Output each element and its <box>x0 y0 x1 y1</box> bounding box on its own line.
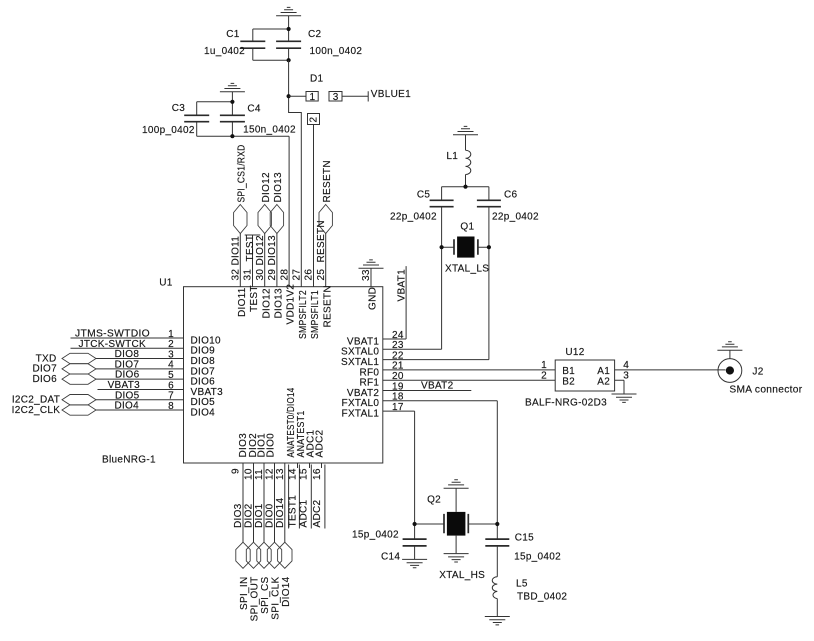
svg-text:15p_0402: 15p_0402 <box>352 530 399 541</box>
svg-text:ADC1: ADC1 <box>299 499 310 527</box>
svg-text:100p_0402: 100p_0402 <box>142 125 195 136</box>
svg-text:C1: C1 <box>226 29 240 40</box>
svg-text:C2: C2 <box>308 29 322 40</box>
svg-text:RESETN: RESETN <box>322 285 333 327</box>
svg-text:VBLUE1: VBLUE1 <box>371 89 411 100</box>
svg-text:BlueNRG-1: BlueNRG-1 <box>102 454 156 465</box>
svg-text:DIO6: DIO6 <box>32 374 57 385</box>
svg-text:C6: C6 <box>504 190 518 201</box>
svg-text:1: 1 <box>541 360 547 371</box>
svg-text:D1: D1 <box>310 74 324 85</box>
svg-text:DIO6: DIO6 <box>191 377 216 388</box>
svg-text:B1: B1 <box>562 366 575 377</box>
svg-text:22p_0402: 22p_0402 <box>492 212 539 223</box>
svg-text:ADC2: ADC2 <box>312 499 323 527</box>
svg-text:TBD_0402: TBD_0402 <box>517 592 567 603</box>
svg-text:DIO13: DIO13 <box>273 172 284 203</box>
svg-text:22p_0402: 22p_0402 <box>390 212 437 223</box>
svg-text:C14: C14 <box>381 552 400 563</box>
svg-text:B2: B2 <box>562 377 575 388</box>
svg-text:32: 32 <box>231 269 242 281</box>
svg-text:DIO14: DIO14 <box>275 497 286 528</box>
svg-text:15p_0402: 15p_0402 <box>514 552 561 563</box>
svg-text:SPI_OUT: SPI_OUT <box>250 577 261 622</box>
svg-text:SMPSFILT1: SMPSFILT1 <box>310 290 321 339</box>
svg-text:25: 25 <box>316 269 327 281</box>
svg-text:L1: L1 <box>446 151 458 162</box>
svg-text:DIO0: DIO0 <box>265 433 276 458</box>
svg-text:13: 13 <box>275 468 286 480</box>
svg-text:Q1: Q1 <box>460 222 474 233</box>
svg-text:SPI_CLK: SPI_CLK <box>271 576 282 619</box>
svg-text:30: 30 <box>255 269 266 281</box>
svg-text:L5: L5 <box>516 579 528 590</box>
svg-text:2: 2 <box>541 370 547 381</box>
svg-text:J2: J2 <box>752 367 763 378</box>
svg-text:DIO12: DIO12 <box>261 288 272 319</box>
svg-text:XTAL_HS: XTAL_HS <box>439 570 485 581</box>
svg-text:VBAT2: VBAT2 <box>421 381 454 392</box>
svg-text:GND: GND <box>368 287 379 310</box>
svg-text:DIO14: DIO14 <box>281 576 292 607</box>
svg-text:DIO2: DIO2 <box>244 503 255 528</box>
svg-text:ADC2: ADC2 <box>315 429 326 457</box>
svg-text:SPI_CS: SPI_CS <box>260 576 271 613</box>
svg-text:BALF-NRG-02D3: BALF-NRG-02D3 <box>525 398 607 409</box>
svg-text:TEST: TEST <box>249 285 260 312</box>
svg-text:1u_0402: 1u_0402 <box>204 46 245 57</box>
svg-text:A1: A1 <box>597 366 610 377</box>
svg-text:RESETN: RESETN <box>322 160 333 202</box>
svg-text:27: 27 <box>292 269 303 281</box>
svg-text:DIO3: DIO3 <box>233 503 244 528</box>
svg-text:28: 28 <box>279 269 290 281</box>
svg-text:FXTAL1: FXTAL1 <box>342 409 380 420</box>
svg-text:DIO11: DIO11 <box>231 236 242 266</box>
svg-text:29: 29 <box>267 269 278 281</box>
svg-text:26: 26 <box>304 269 315 281</box>
svg-text:DIO13: DIO13 <box>267 235 278 266</box>
svg-text:U1: U1 <box>159 278 173 289</box>
svg-text:31: 31 <box>243 269 254 281</box>
svg-text:DIO8: DIO8 <box>191 356 216 367</box>
svg-text:U12: U12 <box>565 347 584 358</box>
svg-text:C4: C4 <box>247 104 261 115</box>
svg-text:DIO4: DIO4 <box>191 407 216 418</box>
svg-text:15: 15 <box>299 468 310 480</box>
svg-text:SMA connector: SMA connector <box>729 385 802 396</box>
svg-text:3: 3 <box>333 92 339 103</box>
svg-text:VBAT1: VBAT1 <box>396 269 407 302</box>
svg-text:11: 11 <box>254 469 265 480</box>
svg-text:TEST1: TEST1 <box>288 495 299 528</box>
svg-text:14: 14 <box>288 468 299 480</box>
svg-text:10: 10 <box>244 468 255 480</box>
svg-text:4: 4 <box>623 360 629 371</box>
svg-text:C3: C3 <box>172 103 186 114</box>
svg-text:16: 16 <box>312 468 323 480</box>
svg-text:9: 9 <box>231 468 242 474</box>
svg-text:DIO11: DIO11 <box>237 287 248 317</box>
svg-text:3: 3 <box>623 370 629 381</box>
svg-text:XTAL_LS: XTAL_LS <box>445 264 489 275</box>
svg-text:RESETN: RESETN <box>316 220 327 262</box>
svg-text:VDD1V2: VDD1V2 <box>286 284 297 325</box>
svg-text:SMPSFILT2: SMPSFILT2 <box>298 290 309 339</box>
svg-text:TXD: TXD <box>36 353 57 364</box>
svg-text:100n_0402: 100n_0402 <box>310 46 363 57</box>
svg-text:SPI_IN: SPI_IN <box>239 577 250 610</box>
svg-text:DIO13: DIO13 <box>274 288 285 319</box>
svg-text:Q2: Q2 <box>427 495 441 506</box>
svg-text:SPI_CS1/RXD: SPI_CS1/RXD <box>237 145 248 203</box>
svg-text:150n_0402: 150n_0402 <box>243 125 296 136</box>
svg-text:DIO12: DIO12 <box>261 172 272 203</box>
svg-text:C15: C15 <box>515 533 534 544</box>
svg-text:2: 2 <box>309 117 320 123</box>
svg-text:33: 33 <box>361 269 372 281</box>
svg-text:DIO12: DIO12 <box>255 235 266 266</box>
svg-text:1: 1 <box>310 92 316 103</box>
svg-text:C5: C5 <box>417 190 431 201</box>
svg-text:A2: A2 <box>597 377 610 388</box>
svg-text:DIO1: DIO1 <box>254 503 265 528</box>
svg-text:I2C2_CLK: I2C2_CLK <box>12 405 61 416</box>
